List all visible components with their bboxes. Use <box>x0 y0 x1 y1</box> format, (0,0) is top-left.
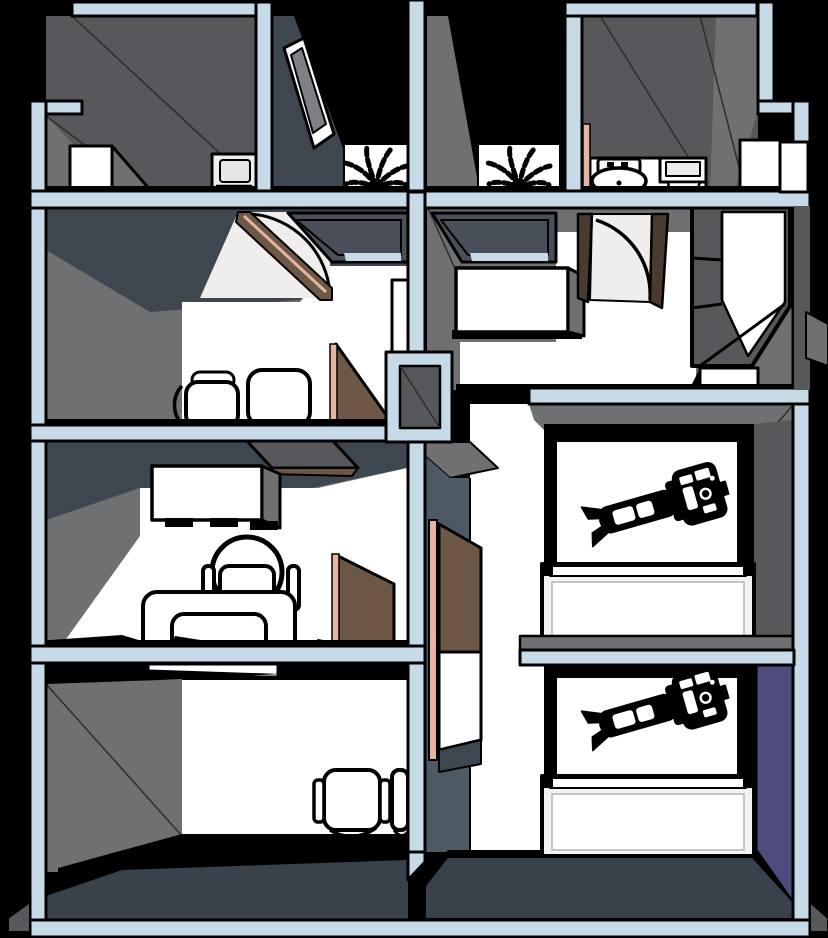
clinic-counter <box>542 776 754 856</box>
entry-door <box>578 214 668 308</box>
door-edge <box>583 124 590 192</box>
consult-room <box>46 208 408 427</box>
treatment-room-1 <box>520 404 794 654</box>
floorplan-screenshot <box>0 0 828 938</box>
clinic-counter <box>542 564 754 642</box>
side-cabinet <box>780 142 808 192</box>
wall-bottom <box>30 920 810 937</box>
wall-outer-left <box>30 101 46 933</box>
right-wall-shaded <box>794 206 810 390</box>
wall-d <box>565 2 582 194</box>
wall-top-left <box>72 2 268 16</box>
guest-chair <box>248 370 310 426</box>
floating-cabinet <box>152 466 280 530</box>
office-room <box>36 440 425 666</box>
central-corridor <box>425 404 544 854</box>
bathroom <box>582 16 786 194</box>
waiting-chair <box>314 770 390 837</box>
wall-horizontal-2 <box>30 425 410 441</box>
wall-central-top <box>408 0 425 194</box>
corridor-door <box>429 520 481 772</box>
wall-pillar <box>392 280 408 360</box>
column-shaft <box>386 352 452 442</box>
wall-horizontal-3 <box>30 646 425 663</box>
wall-f <box>758 2 774 110</box>
wall-bathroom-top <box>565 2 757 16</box>
hallway-bench <box>452 268 584 339</box>
wall-dividing <box>520 650 794 665</box>
waiting-chair <box>392 770 408 836</box>
waiting-room <box>46 664 408 920</box>
storage-box <box>70 146 112 192</box>
wall-treatment-top <box>529 388 810 404</box>
wall-b <box>256 2 272 194</box>
floorplan-canvas <box>0 0 828 938</box>
